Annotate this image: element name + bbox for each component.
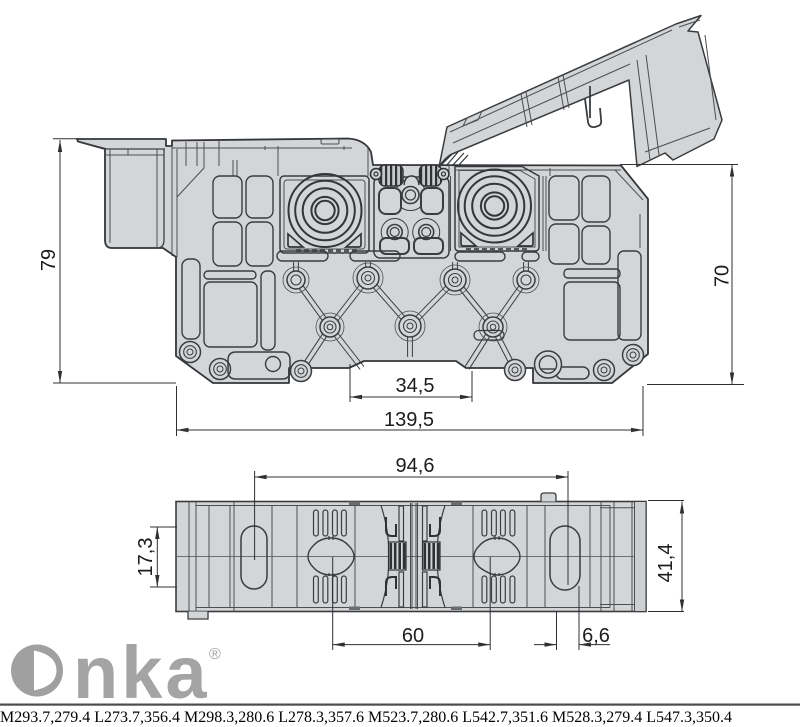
svg-text:70: 70: [712, 265, 734, 287]
svg-text:17,3: 17,3: [135, 538, 157, 577]
svg-text:6,6: 6,6: [582, 625, 610, 647]
svg-text:41,4: 41,4: [655, 544, 677, 583]
svg-text:34,5: 34,5: [396, 375, 435, 397]
svg-text:nka: nka: [73, 631, 210, 709]
svg-text:79: 79: [38, 249, 60, 271]
svg-text:94,6: 94,6: [396, 455, 435, 477]
svg-text:®: ®: [209, 646, 221, 663]
svg-text:60: 60: [402, 625, 424, 647]
svg-text:139,5: 139,5: [384, 409, 434, 431]
